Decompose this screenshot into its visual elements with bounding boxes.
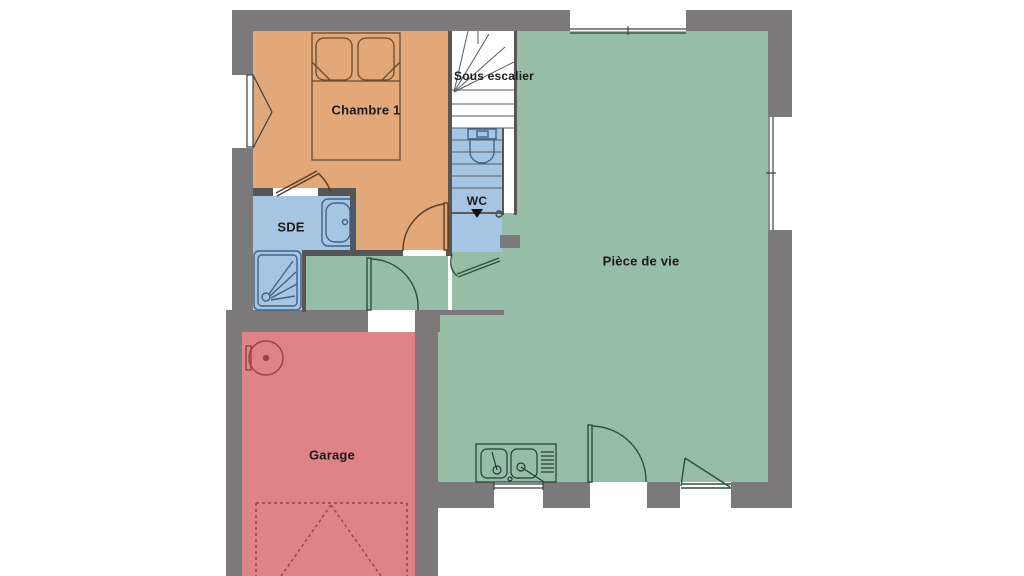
- wall-bottom-segment-2: [543, 482, 590, 508]
- floor-plan-drawing: [0, 0, 1024, 576]
- partition-chambre-bottom-left: [350, 250, 403, 256]
- wall-bottom-segment-4: [731, 482, 792, 508]
- wall-hallway-south-stub: [438, 310, 504, 315]
- label-chambre1: Chambre 1: [332, 103, 401, 118]
- room-hallway: [305, 256, 448, 310]
- partition-sde-bottom: [302, 250, 350, 256]
- label-wc: WC: [467, 194, 487, 208]
- room-stairwell-strip: [504, 128, 514, 215]
- room-fills: [242, 31, 768, 576]
- room-sde-shower-area: [253, 250, 302, 312]
- partition-wc-stub: [500, 235, 520, 248]
- label-sous-escalier: Sous escalier: [454, 69, 534, 83]
- partition-sde-top-left: [253, 188, 273, 196]
- wall-bottom-segment-3: [647, 482, 680, 508]
- partition-shower-right: [302, 256, 306, 312]
- label-garage: Garage: [309, 448, 355, 463]
- partition-stair-right: [514, 31, 517, 215]
- wall-top-right-segment: [686, 10, 792, 31]
- wall-right-upper-segment: [768, 31, 792, 117]
- wall-top-left-segment: [232, 10, 570, 31]
- wall-garage-right: [415, 310, 438, 576]
- partition-wc-right: [502, 128, 504, 215]
- label-piece-de-vie: Pièce de vie: [603, 254, 680, 269]
- wall-garage-left: [226, 320, 242, 576]
- wall-left-lower-segment: [232, 148, 253, 332]
- room-piece-de-vie-south: [438, 315, 517, 482]
- room-hallway-east-strip: [502, 213, 517, 315]
- wall-right-lower-segment: [768, 230, 792, 508]
- floor-plan: Chambre 1 Sous escalier WC SDE Pièce de …: [0, 0, 1024, 576]
- label-sde: SDE: [277, 220, 304, 235]
- wall-left-upper-segment: [232, 31, 253, 75]
- window-bottom-kitchen: [494, 482, 543, 490]
- wall-garage-top-left-segment: [226, 310, 368, 332]
